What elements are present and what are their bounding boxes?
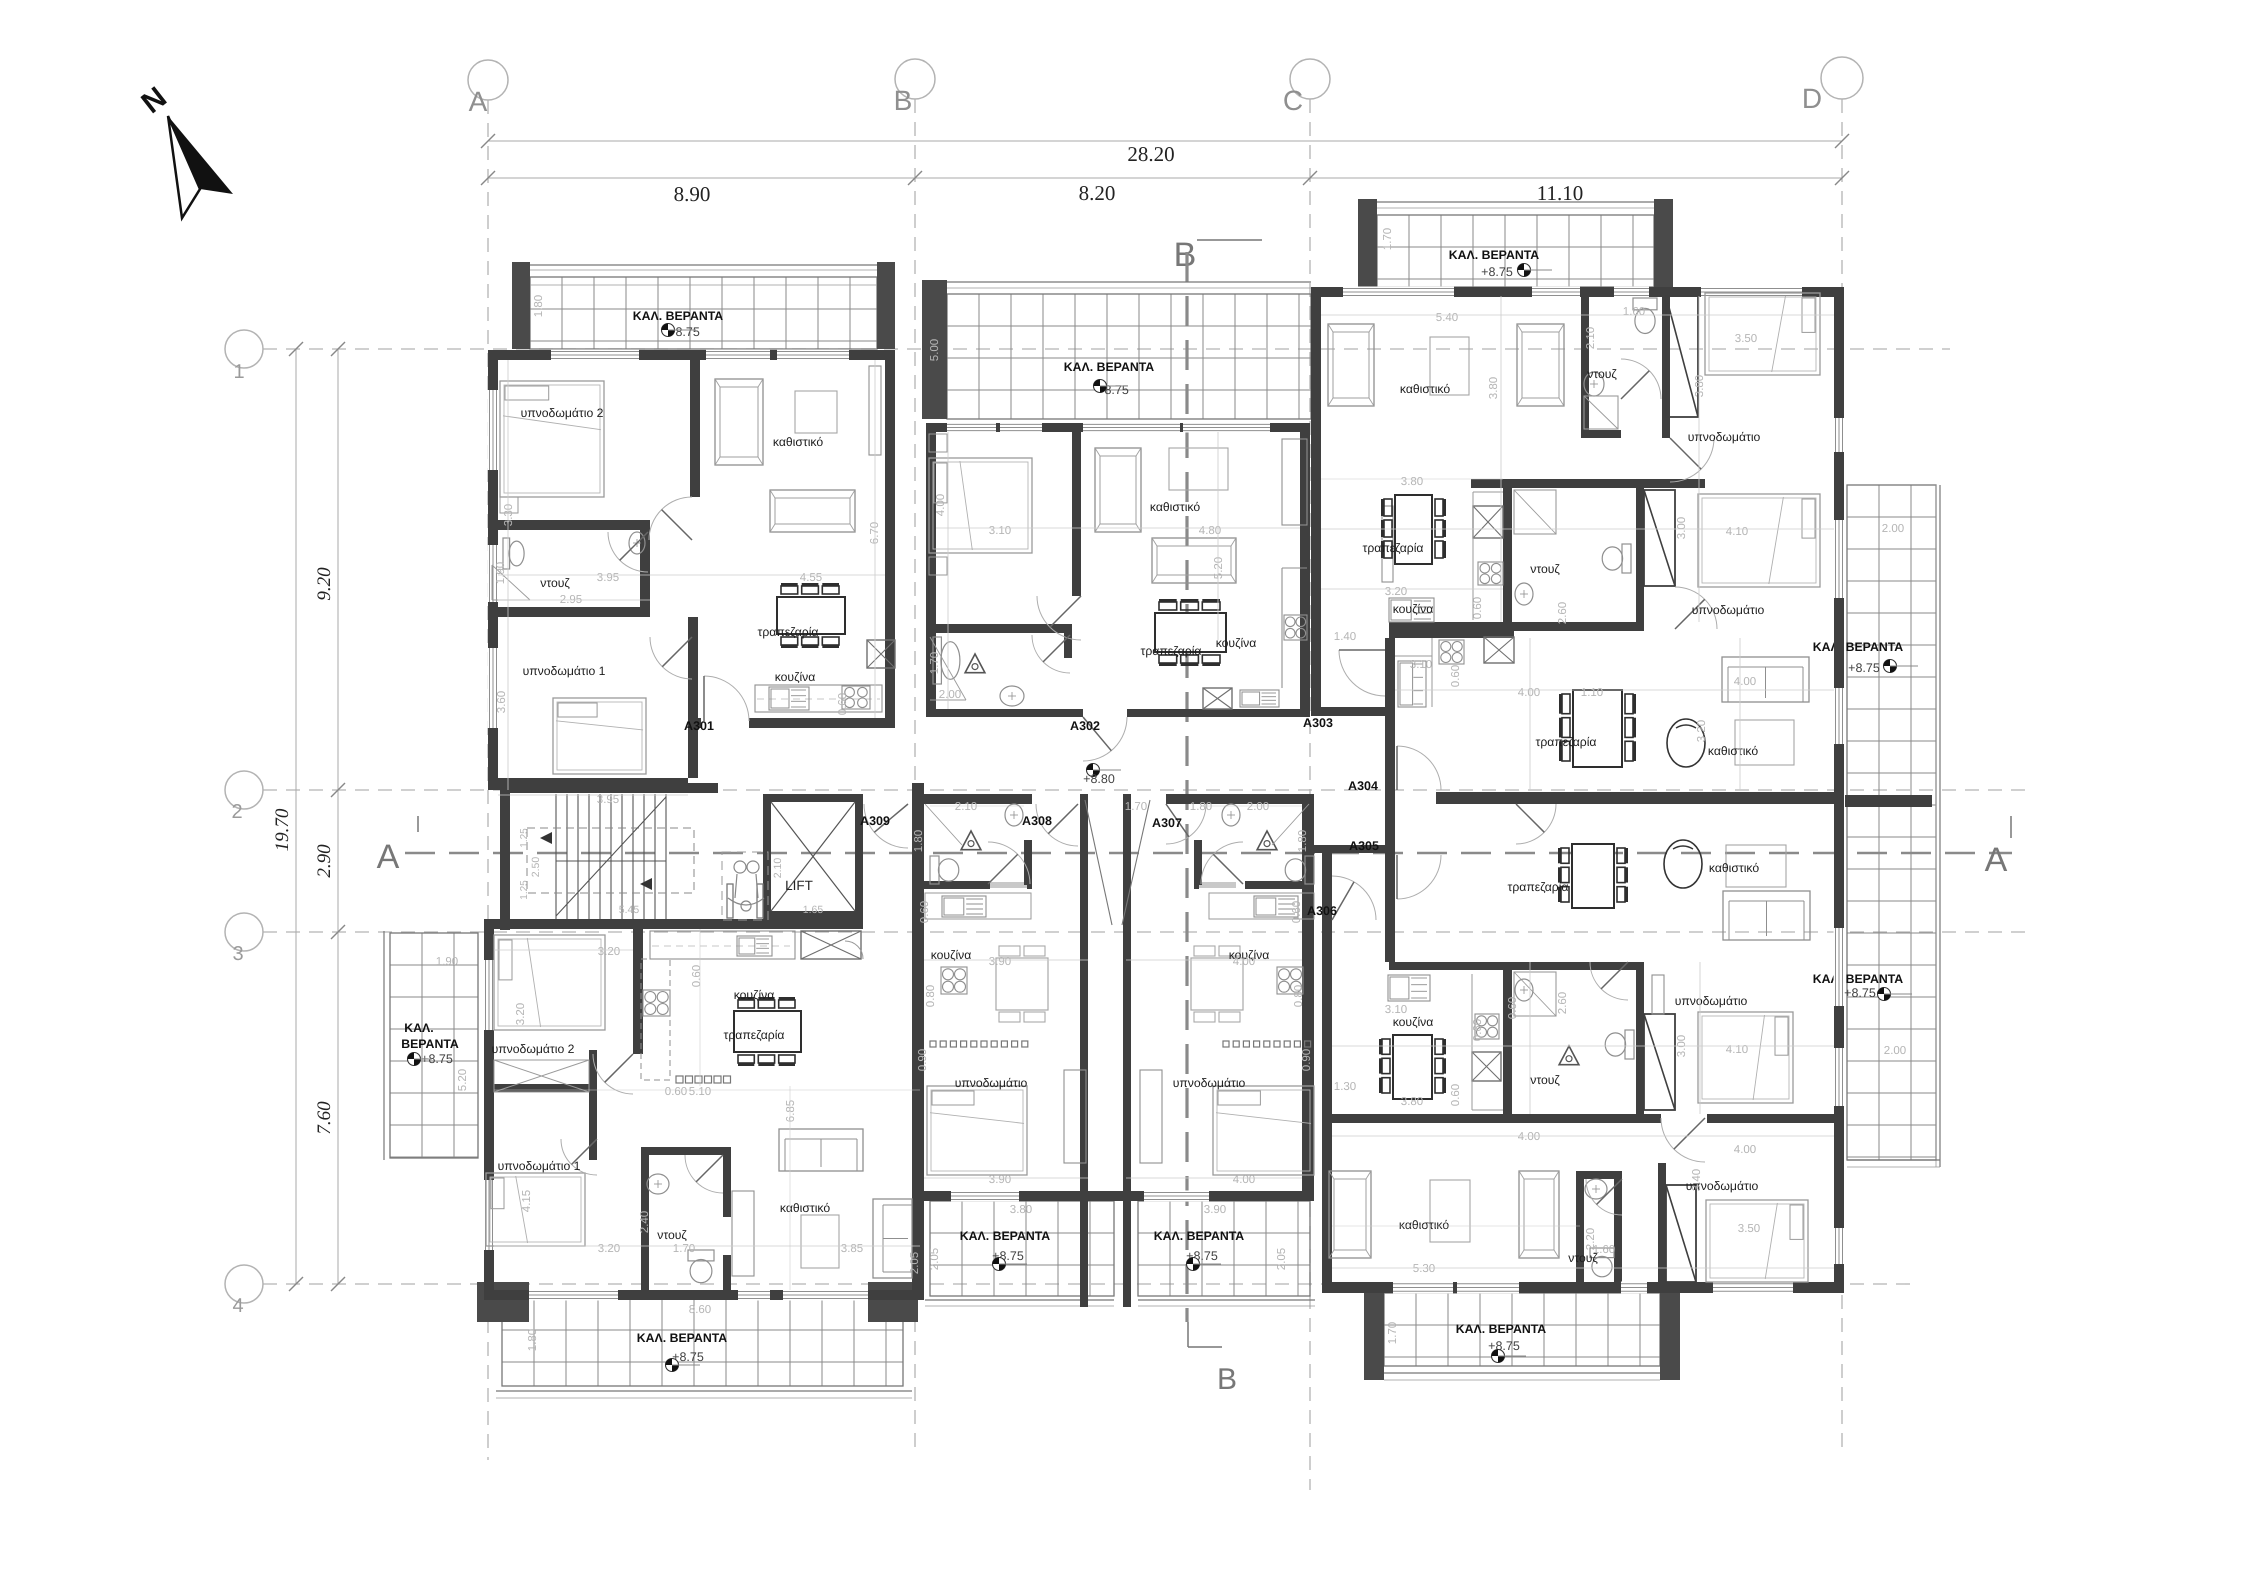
svg-text:1.90: 1.90	[436, 956, 458, 968]
svg-text:κουζίνα: κουζίνα	[1393, 1015, 1434, 1029]
svg-text:1.30: 1.30	[1334, 1081, 1356, 1093]
svg-text:ΚΑΛ. ΒΕΡΑΝΤΑ: ΚΑΛ. ΒΕΡΑΝΤΑ	[633, 309, 724, 323]
svg-text:5.40: 5.40	[1436, 312, 1458, 324]
svg-text:0.60: 0.60	[1291, 901, 1303, 923]
svg-text:4.00: 4.00	[1518, 687, 1540, 699]
svg-text:3.95: 3.95	[597, 794, 619, 806]
svg-text:ΚΑΛ. ΒΕΡΑΝΤΑ: ΚΑΛ. ΒΕΡΑΝΤΑ	[1449, 248, 1540, 262]
svg-text:2.40: 2.40	[639, 1211, 651, 1233]
svg-text:καθιστικό: καθιστικό	[1399, 1218, 1449, 1232]
svg-text:ντουζ: ντουζ	[1530, 1073, 1560, 1087]
svg-text:1.80: 1.80	[533, 295, 545, 317]
svg-text:4.00: 4.00	[1734, 1144, 1756, 1156]
svg-text:B: B	[1174, 236, 1197, 274]
svg-text:1: 1	[233, 361, 244, 383]
svg-text:8.20: 8.20	[1079, 181, 1116, 205]
svg-text:3.10: 3.10	[989, 525, 1011, 537]
svg-text:+8.75: +8.75	[1481, 265, 1513, 279]
svg-text:2.00: 2.00	[939, 689, 961, 701]
svg-text:0.60: 0.60	[1507, 997, 1519, 1019]
svg-text:A307: A307	[1152, 816, 1182, 830]
svg-text:4.00: 4.00	[1233, 956, 1255, 968]
svg-text:0.60: 0.60	[1472, 1019, 1484, 1041]
svg-text:υπνοδωμάτιο: υπνοδωμάτιο	[1675, 994, 1748, 1008]
svg-text:ντουζ: ντουζ	[540, 576, 570, 590]
svg-text:τραπεζαρία: τραπεζαρία	[758, 625, 819, 639]
svg-text:3.80: 3.80	[1694, 375, 1706, 397]
svg-text:3.90: 3.90	[989, 956, 1011, 968]
svg-text:ΚΑΛ. ΒΕΡΑΝΤΑ: ΚΑΛ. ΒΕΡΑΝΤΑ	[637, 1331, 728, 1345]
svg-text:3.20: 3.20	[598, 1243, 620, 1255]
svg-text:28.20: 28.20	[1127, 142, 1174, 166]
svg-text:1.80: 1.80	[1297, 830, 1309, 852]
svg-text:A: A	[377, 838, 400, 876]
svg-text:4.55: 4.55	[800, 572, 822, 584]
svg-text:ΚΑΛ. ΒΕΡΑΝΤΑ: ΚΑΛ. ΒΕΡΑΝΤΑ	[960, 1229, 1051, 1243]
svg-text:A303: A303	[1303, 716, 1333, 730]
svg-text:A301: A301	[684, 719, 714, 733]
svg-text:καθιστικό: καθιστικό	[1150, 500, 1200, 514]
svg-text:4.10: 4.10	[1726, 526, 1748, 538]
svg-text:3.85: 3.85	[841, 1243, 863, 1255]
svg-text:3.90: 3.90	[989, 1174, 1011, 1186]
svg-text:19.70: 19.70	[272, 808, 293, 851]
svg-text:5.30: 5.30	[1413, 1263, 1435, 1275]
svg-text:1.40: 1.40	[1334, 631, 1356, 643]
svg-text:0.90: 0.90	[1301, 1049, 1313, 1071]
svg-text:+8.75: +8.75	[1844, 986, 1876, 1000]
svg-text:ντουζ: ντουζ	[657, 1228, 687, 1242]
svg-text:2.05: 2.05	[1276, 1248, 1288, 1270]
svg-text:ΚΑΛ. ΒΕΡΑΝΤΑ: ΚΑΛ. ΒΕΡΑΝΤΑ	[1813, 972, 1904, 986]
svg-text:κουζίνα: κουζίνα	[775, 670, 816, 684]
svg-text:καθιστικό: καθιστικό	[780, 1201, 830, 1215]
svg-text:A: A	[1985, 841, 2008, 879]
svg-text:υπνοδωμάτιο 1: υπνοδωμάτιο 1	[498, 1159, 581, 1173]
svg-text:0.60: 0.60	[837, 693, 849, 715]
svg-text:3.80: 3.80	[1401, 476, 1423, 488]
svg-text:D: D	[1802, 83, 1822, 114]
svg-text:καθιστικό: καθιστικό	[1708, 744, 1758, 758]
svg-text:καθιστικό: καθιστικό	[1709, 861, 1759, 875]
svg-text:2.00: 2.00	[1884, 1045, 1906, 1057]
svg-text:+8.75: +8.75	[1848, 661, 1880, 675]
svg-text:2.00: 2.00	[1882, 523, 1904, 535]
svg-text:A309: A309	[860, 814, 890, 828]
svg-text:0.60: 0.60	[1472, 597, 1484, 619]
svg-text:1.65: 1.65	[803, 904, 824, 916]
svg-text:2: 2	[231, 801, 242, 823]
svg-text:1.70: 1.70	[1382, 228, 1394, 250]
svg-text:3.10: 3.10	[1410, 659, 1432, 671]
svg-text:0.60: 0.60	[1450, 1084, 1462, 1106]
svg-text:3: 3	[232, 943, 243, 965]
svg-text:2.90: 2.90	[314, 844, 335, 878]
svg-text:ΚΑΛ. ΒΕΡΑΝΤΑ: ΚΑΛ. ΒΕΡΑΝΤΑ	[1154, 1229, 1245, 1243]
svg-text:A302: A302	[1070, 719, 1100, 733]
svg-text:2.60: 2.60	[1557, 992, 1569, 1014]
svg-text:ντουζ: ντουζ	[1587, 367, 1617, 381]
svg-text:1.70: 1.70	[929, 652, 941, 674]
svg-text:ΚΑΛ. ΒΕΡΑΝΤΑ: ΚΑΛ. ΒΕΡΑΝΤΑ	[1456, 1322, 1547, 1336]
svg-text:0.60: 0.60	[919, 901, 931, 923]
svg-text:3.50: 3.50	[1735, 333, 1757, 345]
svg-text:υπνοδωμάτιο 2: υπνοδωμάτιο 2	[492, 1042, 575, 1056]
svg-text:3.20: 3.20	[515, 1003, 527, 1025]
svg-text:τραπεζαρία: τραπεζαρία	[1363, 541, 1424, 555]
svg-text:τραπεζαρία: τραπεζαρία	[1141, 644, 1202, 658]
svg-text:1.80: 1.80	[1190, 801, 1212, 813]
svg-text:5.00: 5.00	[929, 339, 941, 361]
svg-text:C: C	[1283, 85, 1303, 116]
svg-text:4.00: 4.00	[1734, 676, 1756, 688]
svg-text:2.50: 2.50	[530, 857, 542, 878]
svg-text:υπνοδωμάτιο: υπνοδωμάτιο	[1692, 603, 1765, 617]
svg-text:ΚΑΛ. ΒΕΡΑΝΤΑ: ΚΑΛ. ΒΕΡΑΝΤΑ	[1064, 360, 1155, 374]
svg-text:καθιστικό: καθιστικό	[773, 435, 823, 449]
svg-text:ντουζ: ντουζ	[1530, 562, 1560, 576]
svg-text:3.20: 3.20	[1696, 720, 1708, 742]
svg-text:3.20: 3.20	[1385, 586, 1407, 598]
svg-text:3.10: 3.10	[1385, 1004, 1407, 1016]
svg-text:4.15: 4.15	[521, 1190, 533, 1212]
svg-text:3.60: 3.60	[496, 691, 508, 713]
svg-text:3.80: 3.80	[1401, 1096, 1423, 1108]
svg-text:1.80: 1.80	[527, 1329, 539, 1351]
svg-text:A305: A305	[1349, 839, 1379, 853]
svg-text:0.60: 0.60	[1450, 665, 1462, 687]
svg-text:5.45: 5.45	[619, 904, 640, 916]
svg-text:ΒΕΡΑΝΤΑ: ΒΕΡΑΝΤΑ	[401, 1037, 459, 1051]
svg-text:0.80: 0.80	[925, 985, 937, 1007]
svg-text:3.80: 3.80	[1488, 377, 1500, 399]
svg-text:3.50: 3.50	[1738, 1223, 1760, 1235]
svg-text:5.20: 5.20	[1213, 557, 1225, 579]
svg-text:8.90: 8.90	[674, 182, 711, 206]
svg-text:1.70: 1.70	[1387, 1322, 1399, 1344]
svg-text:3.20: 3.20	[598, 946, 620, 958]
svg-text:+8.75: +8.75	[1488, 1339, 1520, 1353]
svg-text:2.10: 2.10	[955, 801, 977, 813]
svg-text:2.20: 2.20	[1585, 1228, 1597, 1250]
svg-text:τραπεζαρία: τραπεζαρία	[1508, 880, 1569, 894]
svg-text:A: A	[469, 86, 488, 117]
svg-text:LIFT: LIFT	[785, 878, 813, 893]
svg-text:1.60: 1.60	[1623, 306, 1645, 318]
svg-text:6.85: 6.85	[785, 1100, 797, 1122]
svg-text:A306: A306	[1307, 904, 1337, 918]
svg-text:4.00: 4.00	[1518, 1131, 1540, 1143]
svg-text:1.10: 1.10	[1581, 687, 1603, 699]
svg-text:τραπεζαρία: τραπεζαρία	[724, 1028, 785, 1042]
svg-text:0.60: 0.60	[665, 1086, 687, 1098]
svg-text:κουζίνα: κουζίνα	[1393, 602, 1434, 616]
svg-text:2.60: 2.60	[1557, 602, 1569, 624]
svg-text:5.20: 5.20	[457, 1069, 469, 1091]
svg-text:ΚΑΛ. ΒΕΡΑΝΤΑ: ΚΑΛ. ΒΕΡΑΝΤΑ	[1813, 640, 1904, 654]
svg-text:3.90: 3.90	[1204, 1204, 1226, 1216]
svg-text:A304: A304	[1348, 779, 1378, 793]
svg-text:2.00: 2.00	[1247, 801, 1269, 813]
svg-text:1.70: 1.70	[1125, 801, 1147, 813]
svg-text:4.00: 4.00	[935, 494, 947, 516]
svg-text:3.95: 3.95	[597, 572, 619, 584]
svg-text:7.60: 7.60	[314, 1101, 335, 1135]
svg-text:2.05: 2.05	[909, 1252, 921, 1274]
svg-text:8.60: 8.60	[689, 1304, 711, 1316]
svg-text:3.00: 3.00	[1676, 517, 1688, 539]
svg-text:5.10: 5.10	[689, 1086, 711, 1098]
svg-text:1.70: 1.70	[673, 1243, 695, 1255]
svg-text:+8.80: +8.80	[1083, 772, 1115, 786]
svg-text:1.90: 1.90	[495, 562, 507, 584]
svg-text:3.30: 3.30	[503, 504, 515, 526]
svg-text:1.80: 1.80	[913, 830, 925, 852]
svg-text:1.25: 1.25	[519, 828, 530, 848]
svg-text:ΚΑΛ.: ΚΑΛ.	[404, 1021, 433, 1035]
svg-text:4: 4	[232, 1295, 243, 1317]
svg-text:κουζίνα: κουζίνα	[1216, 636, 1257, 650]
svg-text:0.90: 0.90	[917, 1049, 929, 1071]
svg-text:3.40: 3.40	[1691, 1169, 1703, 1191]
svg-text:B: B	[1217, 1363, 1237, 1396]
svg-text:4.00: 4.00	[1233, 1174, 1255, 1186]
svg-text:υπνοδωμάτιο 1: υπνοδωμάτιο 1	[523, 664, 606, 678]
svg-text:0.80: 0.80	[1293, 985, 1305, 1007]
svg-text:υπνοδωμάτιο 2: υπνοδωμάτιο 2	[521, 406, 604, 420]
svg-text:A308: A308	[1022, 814, 1052, 828]
svg-text:υπνοδωμάτιο: υπνοδωμάτιο	[955, 1076, 1028, 1090]
svg-text:B: B	[894, 85, 913, 116]
svg-text:2.10: 2.10	[772, 858, 784, 879]
svg-text:1.25: 1.25	[519, 880, 530, 900]
svg-text:9.20: 9.20	[314, 567, 335, 601]
svg-text:3.80: 3.80	[1010, 1204, 1032, 1216]
svg-text:0.60: 0.60	[691, 965, 703, 987]
svg-text:καθιστικό: καθιστικό	[1400, 382, 1450, 396]
svg-text:υπνοδωμάτιο: υπνοδωμάτιο	[1173, 1076, 1246, 1090]
svg-text:2.05: 2.05	[929, 1248, 941, 1270]
svg-text:τραπεζαρία: τραπεζαρία	[1536, 735, 1597, 749]
svg-text:2.10: 2.10	[1585, 327, 1597, 349]
svg-text:κουζίνα: κουζίνα	[734, 988, 775, 1002]
